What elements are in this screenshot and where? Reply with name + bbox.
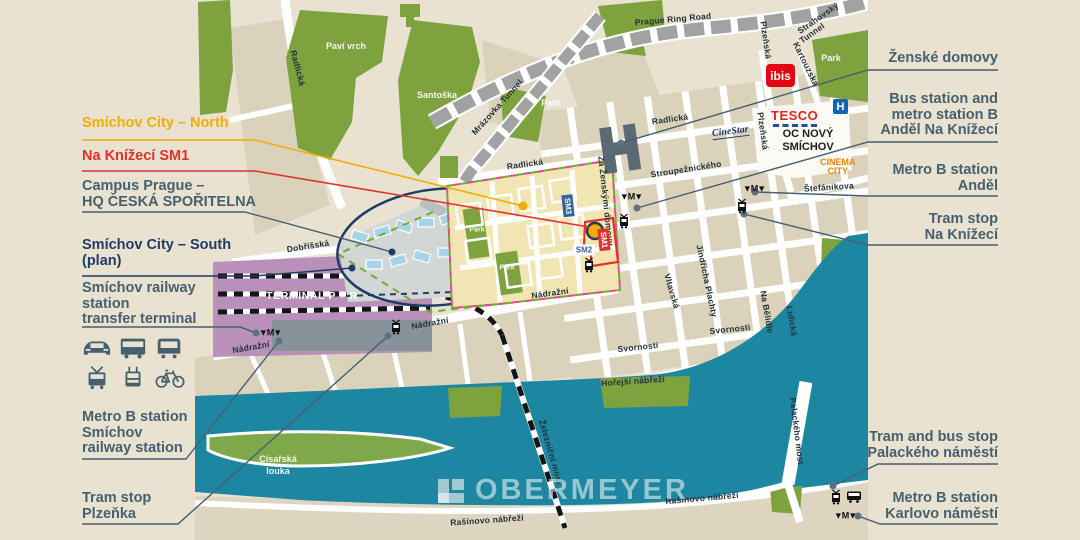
callout-smichov-transfer-terminal: Smíchov railwaystationtransfer terminal: [82, 281, 196, 328]
callout-line: Bus station and: [838, 92, 998, 108]
callout-zenske-domovy: Ženské domovy: [838, 51, 998, 67]
bicycle-icon: [154, 364, 186, 392]
callout-line: transfer terminal: [82, 312, 196, 328]
sm3-label: SM3: [561, 194, 574, 217]
obermeyer-logo-text: OBERMEYER: [475, 474, 689, 507]
tram-icon: [82, 364, 114, 392]
area-label: Paví vrch: [326, 41, 366, 51]
metro-station-icon: ▼M▼: [834, 512, 856, 521]
callout-line: Smíchov City – North: [82, 116, 229, 132]
callout-line: HQ ČESKÁ SPOŘITELNA: [82, 195, 256, 211]
area-label: Park: [541, 98, 561, 108]
cinema-line2: CITY: [820, 167, 856, 176]
area-label: Park: [469, 227, 484, 234]
callout-smichov-city-south: Smíchov City – South(plan): [82, 238, 231, 269]
tram-station-icon: [584, 257, 595, 273]
metro-station-icon: ▼M▼: [259, 329, 281, 338]
callout-line: Anděl Na Knížecí: [838, 123, 998, 139]
callout-line: Palackého náměstí: [838, 446, 998, 462]
callout-line: Plzeňka: [82, 507, 151, 523]
area-label: louka: [266, 466, 290, 476]
tram-station-icon: [737, 198, 748, 214]
callout-line: Tram stop: [838, 212, 998, 228]
callout-line: Smíchov railway: [82, 281, 196, 297]
callout-na-knizeci-sm1: Na Knížecí SM1: [82, 149, 189, 165]
bus-station-icon: [847, 491, 862, 503]
callout-metro-b-smichov: Metro B stationSmíchovrailway station: [82, 410, 188, 457]
sm2-label: SM2: [573, 245, 595, 256]
callout-tram-stop-na-knizeci: Tram stopNa Knížecí: [838, 212, 998, 243]
area-label: Park: [821, 53, 841, 63]
tesco-logo: TESCO: [771, 108, 818, 127]
callout-line: Anděl: [838, 179, 998, 195]
callout-line: metro station B: [838, 108, 998, 124]
callout-metro-b-karlovo: Metro B stationKarlovo náměstí: [838, 491, 998, 522]
callout-line: Smíchov: [82, 426, 188, 442]
callout-line: Metro B station: [82, 410, 188, 426]
callout-line: Tram and bus stop: [838, 430, 998, 446]
tesco-text: TESCO: [771, 108, 818, 123]
oc-line2: SMÍCHOV: [765, 141, 851, 154]
oc-novy-smichov-label: OC NOVÝ SMÍCHOV: [765, 128, 851, 153]
sm1-label: SM1: [597, 228, 610, 251]
callout-line: Metro B station: [838, 163, 998, 179]
callout-line: Tram stop: [82, 491, 151, 507]
area-label: Park: [499, 265, 514, 272]
tram-station-icon: [619, 213, 630, 229]
area-label: Císařská: [259, 454, 297, 464]
transfer-terminal-icons: [82, 334, 186, 392]
metro-station-icon: ▼M▼: [620, 193, 642, 202]
callout-line: Karlovo náměstí: [838, 507, 998, 523]
riverbank-park: [448, 386, 502, 418]
terminal-pr-label: TERMINAL P + R: [247, 290, 377, 302]
obermeyer-watermark: OBERMEYER: [437, 474, 689, 507]
car-icon: [82, 334, 114, 362]
callout-line: Ženské domovy: [838, 51, 998, 67]
callout-campus-prague: Campus Prague –HQ ČESKÁ SPOŘITELNA: [82, 179, 256, 210]
cinema-city-logo: CINEMA CITY: [820, 158, 856, 176]
obermeyer-logo-icon: [437, 476, 467, 506]
area-label: Santoška: [417, 90, 457, 100]
metro-station-icon: ▼M▼: [743, 185, 765, 194]
callout-line: station: [82, 297, 196, 313]
callout-line: railway station: [82, 441, 188, 457]
tram-station-icon: [391, 319, 402, 335]
map-page: Smíchov City – NorthNa Knížecí SM1Campus…: [0, 0, 1080, 540]
railcar-icon: [118, 364, 150, 392]
callout-line: (plan): [82, 254, 231, 270]
oc-line1: OC NOVÝ: [765, 128, 851, 141]
callout-line: Metro B station: [838, 491, 998, 507]
callout-line: Na Knížecí SM1: [82, 149, 189, 165]
callout-line: Smíchov City – South: [82, 238, 231, 254]
tesco-dashes: [773, 124, 817, 127]
bus-icon: [118, 334, 150, 362]
callout-line: Na Knížecí: [838, 228, 998, 244]
callout-bus-metro-andel-na-knizeci: Bus station andmetro station BAnděl Na K…: [838, 92, 998, 139]
callout-metro-b-andel: Metro B stationAnděl: [838, 163, 998, 194]
ibis-hotel-logo: ibis: [766, 64, 795, 87]
hospital-icon: H: [833, 99, 848, 114]
callout-tram-bus-palackeho: Tram and bus stopPalackého náměstí: [838, 430, 998, 461]
tram-station-icon: [831, 489, 842, 505]
callout-line: Campus Prague –: [82, 179, 256, 195]
callout-tram-stop-plzenka: Tram stopPlzeňka: [82, 491, 151, 522]
train-icon: [154, 334, 186, 362]
callout-smichov-city-north: Smíchov City – North: [82, 116, 229, 132]
